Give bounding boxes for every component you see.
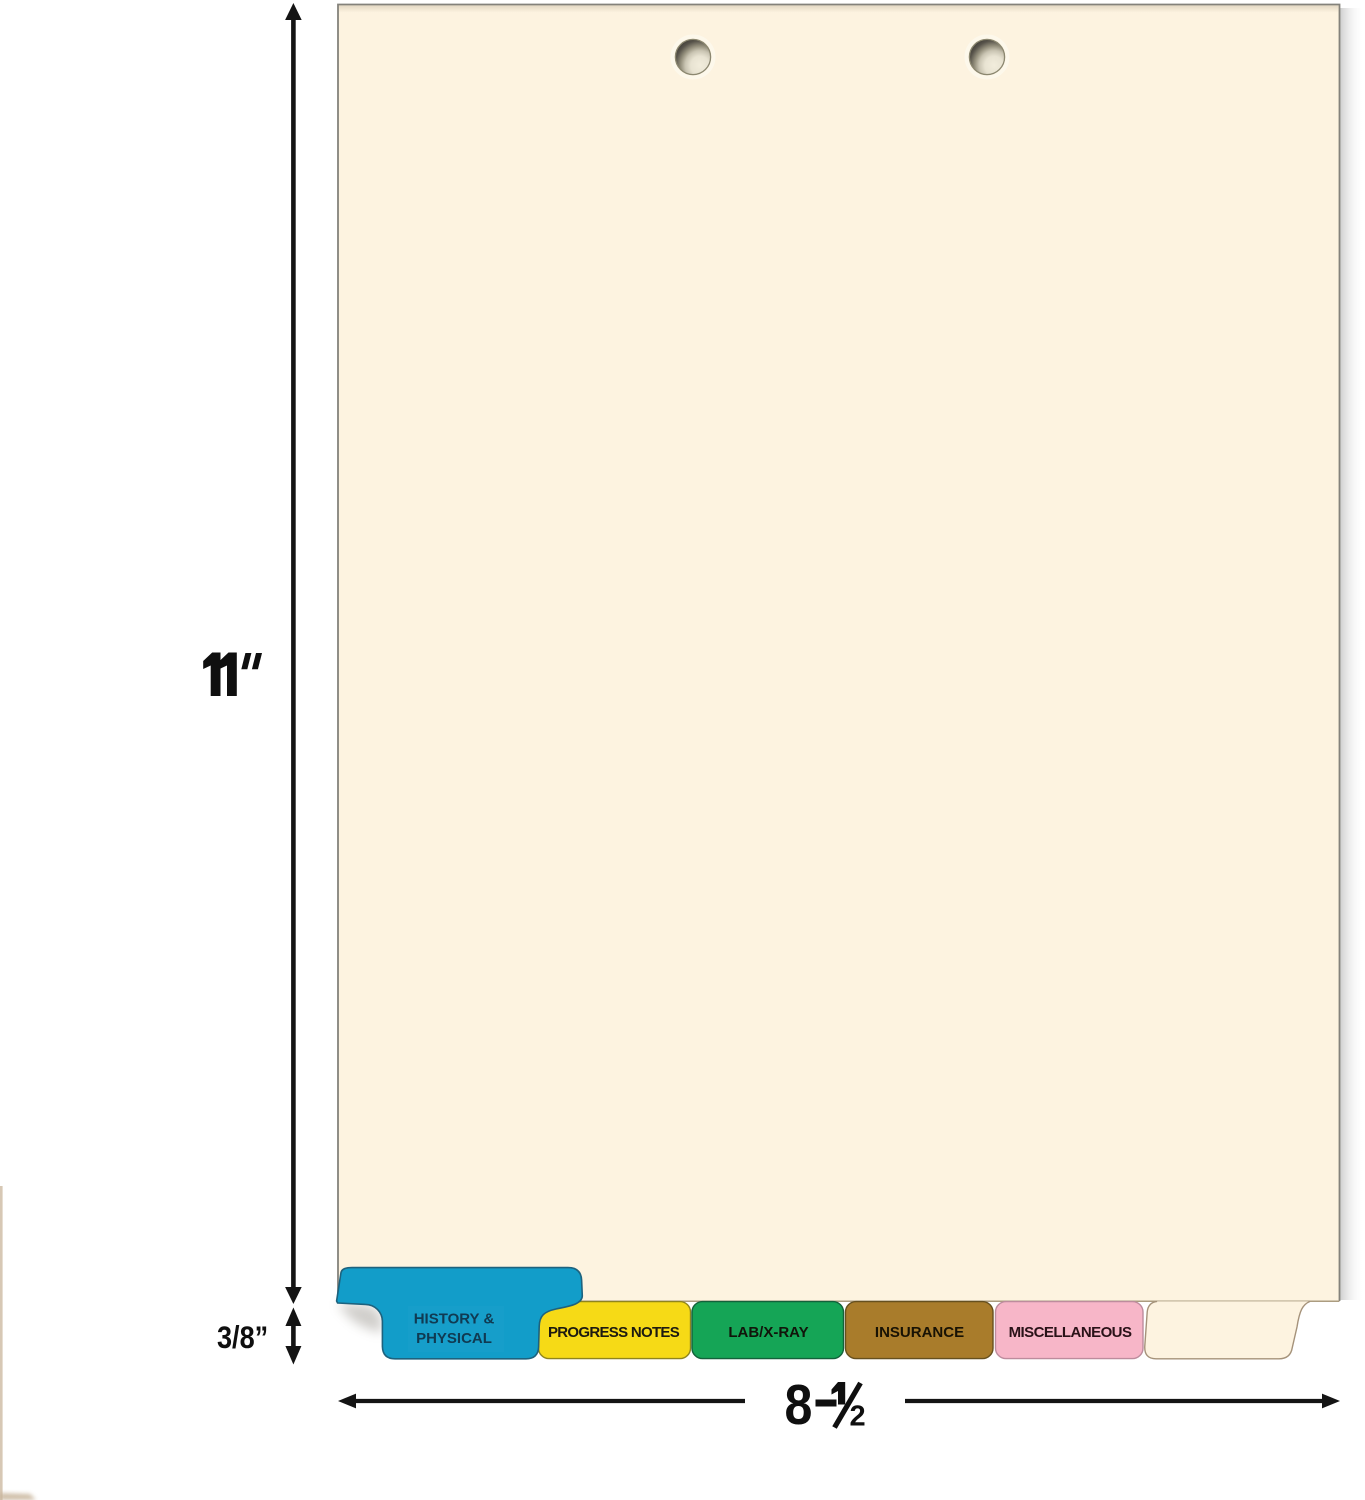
svg-text:PROGRESS NOTES: PROGRESS NOTES [548, 1324, 680, 1341]
svg-text:3/8”: 3/8” [217, 1320, 268, 1355]
svg-text:INSURANCE: INSURANCE [875, 1324, 964, 1341]
svg-text:PHYSICAL: PHYSICAL [416, 1330, 492, 1347]
svg-text:2: 2 [850, 1401, 866, 1433]
svg-text:MISCELLANEOUS: MISCELLANEOUS [1009, 1324, 1132, 1341]
svg-text:HISTORY &: HISTORY & [414, 1311, 495, 1328]
svg-text:8: 8 [785, 1373, 813, 1437]
svg-text:LAB/X-RAY: LAB/X-RAY [728, 1324, 808, 1341]
